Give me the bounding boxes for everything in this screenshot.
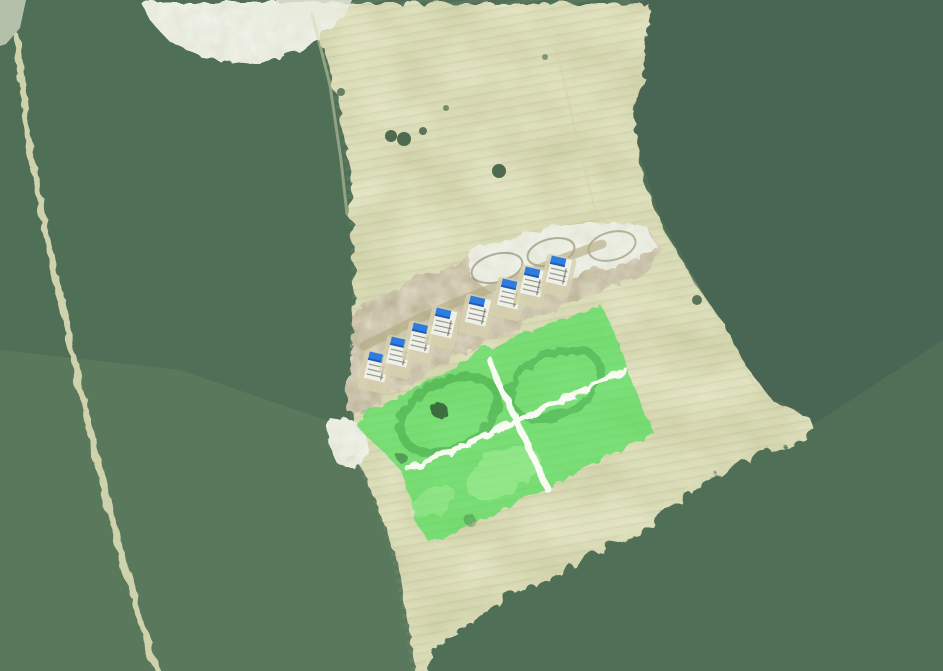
- field-tree: [443, 105, 449, 111]
- field-tree: [542, 54, 548, 60]
- satellite-map-view[interactable]: [0, 0, 943, 671]
- parcel-shrub: [395, 451, 405, 461]
- field-tree: [419, 127, 427, 135]
- field-tree: [337, 88, 345, 96]
- field-tree: [692, 295, 702, 305]
- scene-root: [0, 0, 943, 671]
- parcel-tree: [429, 400, 445, 416]
- parcel-shrub: [462, 512, 474, 524]
- field-tree: [385, 130, 397, 142]
- map-canvas[interactable]: [0, 0, 943, 671]
- field-tree: [492, 164, 506, 178]
- field-tree: [397, 132, 411, 146]
